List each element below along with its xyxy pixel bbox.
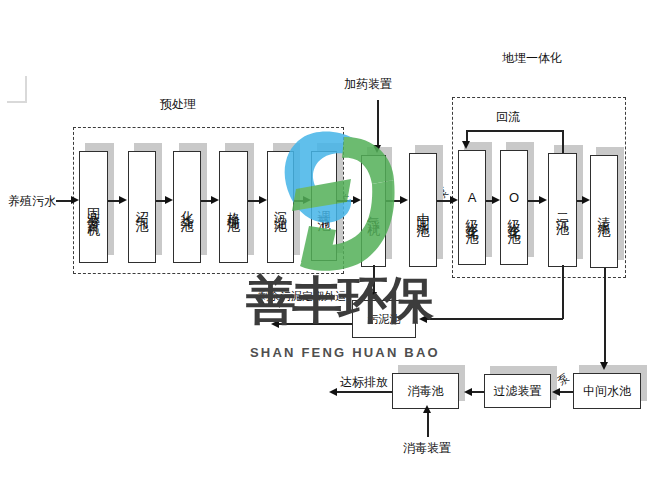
tank-secondary-sedimentation: 二沉池 xyxy=(548,153,577,267)
flow-line-3 xyxy=(201,200,211,202)
flow-line-1 xyxy=(108,200,119,202)
flow-arrowhead-5 xyxy=(303,196,311,204)
tank-intermediate-1: 中间水池 xyxy=(409,153,437,267)
tank-biogas: 沼气池 xyxy=(128,151,156,263)
filter-disinfect-arrowhead xyxy=(464,388,472,396)
mid2-filter-arrowhead xyxy=(552,388,560,396)
pretreatment-section-label: 预处理 xyxy=(160,96,196,113)
sludge-out-arrowhead xyxy=(271,320,279,328)
dosing-device-label: 加药装置 xyxy=(344,76,392,93)
reflux-line-left xyxy=(466,130,468,141)
flow-line-4 xyxy=(248,200,259,202)
machine-air-flotation: 气浮机 xyxy=(361,155,386,267)
flow-arrowhead-7 xyxy=(400,196,408,204)
flow-line-6-pump xyxy=(337,200,353,202)
reflux-label: 回流 xyxy=(496,109,520,126)
flow-arrowhead-2 xyxy=(165,196,173,204)
tank-a-bio: A级生化池 xyxy=(458,150,486,265)
page-margin-mark-horizontal xyxy=(7,101,27,103)
flow-arrowhead-11 xyxy=(582,196,590,204)
disinfect-device-line xyxy=(427,413,429,437)
flow-arrowhead-10 xyxy=(539,196,547,204)
secondary-sludge-line-vertical xyxy=(562,265,564,319)
flow-arrowhead-4 xyxy=(259,196,267,204)
tank-septic: 化粪池 xyxy=(173,151,201,263)
tank-sludge: 污泥池 xyxy=(352,300,416,338)
flow-line-2 xyxy=(156,200,165,202)
secondary-sludge-line-horizontal xyxy=(427,318,563,320)
tank-regulating: 调节池 xyxy=(311,151,337,261)
flow-arrowhead-8 xyxy=(450,196,458,204)
flow-diagram-canvas: 预处理 地埋一体化 加药装置 回流 养殖污水 剩余污泥定期外运 达标排放 消毒装… xyxy=(0,0,650,500)
flow-line-7 xyxy=(386,200,400,202)
discharge-label: 达标排放 xyxy=(340,374,388,391)
influent-label: 养殖污水 xyxy=(8,193,56,210)
flow-line-influent xyxy=(56,200,71,202)
tank-solid-liquid-separator: 固液分离机 xyxy=(79,151,108,263)
sludge-removal-note: 剩余污泥定期外运 xyxy=(258,289,346,304)
device-filter: 过滤装置 xyxy=(484,374,551,408)
tank-disinfection: 消毒池 xyxy=(392,373,459,409)
reflux-line-right xyxy=(562,130,564,153)
page-margin-mark-vertical xyxy=(25,76,27,103)
discharge-line xyxy=(337,391,392,393)
tank-o-bio: O级生化池 xyxy=(500,150,528,265)
tank-sedimentation: 沉淀池 xyxy=(267,151,294,263)
flow-arrowhead-9 xyxy=(492,196,500,204)
flow-arrowhead-influent xyxy=(71,196,79,204)
flotation-sludge-arrowhead xyxy=(369,292,377,300)
disinfect-device-label: 消毒装置 xyxy=(403,440,451,457)
flow-line-5 xyxy=(294,200,303,202)
flow-line-10 xyxy=(528,200,539,202)
mid2-filter-line xyxy=(560,391,573,393)
discharge-arrowhead xyxy=(329,388,337,396)
filter-disinfect-line xyxy=(472,391,484,393)
flow-arrowhead-6 xyxy=(353,196,361,204)
reflux-arrowhead xyxy=(462,141,470,149)
secondary-sludge-arrowhead xyxy=(419,315,427,323)
clear-mid2-line xyxy=(604,268,606,362)
buried-integrated-section-label: 地埋一体化 xyxy=(502,50,562,67)
watermark-latin-text: SHAN FENG HUAN BAO xyxy=(250,345,440,360)
reflux-line-horizontal xyxy=(466,130,562,132)
flow-arrowhead-1 xyxy=(119,196,127,204)
flotation-sludge-line xyxy=(373,265,375,292)
flow-arrowhead-3 xyxy=(211,196,219,204)
sludge-out-line xyxy=(279,323,352,325)
tank-intermediate-2: 中间水池 xyxy=(573,373,641,409)
pump-label-3: 泵 xyxy=(555,370,573,389)
tank-grid: 格栅池 xyxy=(219,151,248,263)
dosing-arrowhead xyxy=(373,145,381,153)
flow-line-8-pump xyxy=(437,200,450,202)
tank-clear-water: 清水池 xyxy=(590,155,618,268)
disinfect-device-arrowhead xyxy=(423,405,431,413)
clear-mid2-arrowhead xyxy=(600,362,608,370)
dosing-arrow-line xyxy=(377,100,379,145)
